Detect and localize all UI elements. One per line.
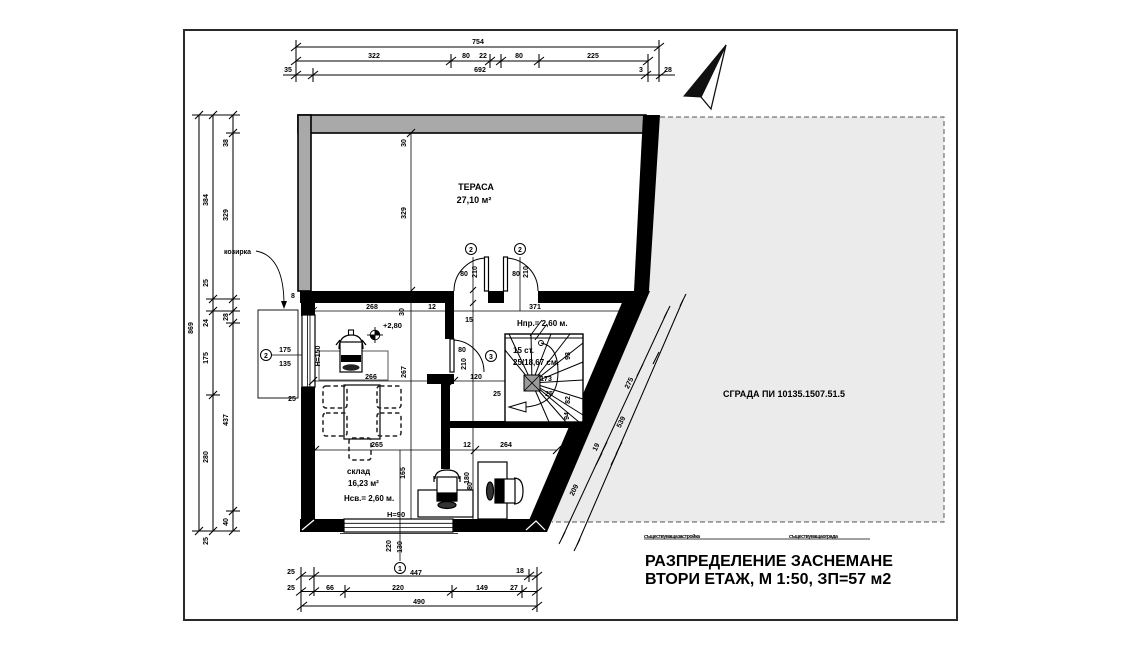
svg-text:210: 210 <box>523 266 530 278</box>
svg-text:30: 30 <box>401 139 408 147</box>
svg-text:2: 2 <box>264 353 268 360</box>
svg-text:268: 268 <box>366 304 378 311</box>
svg-text:869: 869 <box>188 322 195 334</box>
svg-text:437: 437 <box>223 414 230 426</box>
svg-text:210: 210 <box>461 358 468 370</box>
svg-text:съществуващазастройка: съществуващазастройка <box>644 533 700 540</box>
svg-text:40: 40 <box>223 518 230 526</box>
svg-text:съществуващаограда: съществуващаограда <box>789 534 838 540</box>
svg-text:2: 2 <box>518 247 522 254</box>
svg-text:264: 264 <box>500 442 512 449</box>
svg-text:180: 180 <box>464 472 471 484</box>
svg-text:149: 149 <box>476 585 488 592</box>
svg-text:12: 12 <box>463 442 471 449</box>
svg-text:12: 12 <box>428 304 436 311</box>
svg-text:8: 8 <box>291 293 295 300</box>
svg-text:15 ст.: 15 ст. <box>513 346 534 355</box>
svg-text:265: 265 <box>371 442 383 449</box>
svg-text:35: 35 <box>284 67 292 74</box>
svg-text:175: 175 <box>279 347 291 354</box>
svg-text:Нпр.= 2,60 м.: Нпр.= 2,60 м. <box>517 319 568 328</box>
svg-text:28: 28 <box>223 313 230 321</box>
svg-text:25: 25 <box>203 537 210 545</box>
svg-text:3: 3 <box>489 354 493 361</box>
svg-text:РАЗПРЕДЕЛЕНИЕ ЗАСНЕМАНЕ: РАЗПРЕДЕЛЕНИЕ ЗАСНЕМАНЕ <box>645 553 893 570</box>
svg-text:490: 490 <box>413 599 425 606</box>
svg-text:220: 220 <box>386 540 393 552</box>
svg-text:80: 80 <box>458 347 466 354</box>
svg-text:3: 3 <box>639 67 643 74</box>
svg-text:80: 80 <box>515 53 523 60</box>
svg-text:329: 329 <box>223 209 230 221</box>
svg-text:80: 80 <box>462 53 470 60</box>
svg-text:175: 175 <box>203 352 210 364</box>
svg-text:66: 66 <box>326 585 334 592</box>
svg-text:25: 25 <box>287 569 295 576</box>
svg-text:22: 22 <box>479 53 487 60</box>
svg-text:28: 28 <box>664 67 672 74</box>
svg-text:18: 18 <box>516 568 524 575</box>
svg-text:80: 80 <box>460 271 468 278</box>
svg-text:25/18,67 см.: 25/18,67 см. <box>513 358 559 367</box>
svg-text:447: 447 <box>410 570 422 577</box>
svg-text:1: 1 <box>398 566 402 573</box>
svg-text:ВТОРИ ЕТАЖ, М 1:50, ЗП=57 м2: ВТОРИ ЕТАЖ, М 1:50, ЗП=57 м2 <box>645 571 891 588</box>
svg-text:козирка: козирка <box>224 249 251 256</box>
svg-text:82: 82 <box>565 396 572 404</box>
svg-text:266: 266 <box>365 374 377 381</box>
svg-text:+2,80: +2,80 <box>383 321 402 330</box>
svg-text:25: 25 <box>545 391 553 398</box>
svg-text:384: 384 <box>203 194 210 206</box>
svg-text:165: 165 <box>400 467 407 479</box>
svg-text:754: 754 <box>472 39 484 46</box>
svg-text:склад: склад <box>347 467 370 476</box>
svg-text:Н=90: Н=90 <box>387 510 405 519</box>
svg-text:27: 27 <box>510 585 518 592</box>
svg-text:СГРАДА ПИ 10135.1507.51.5: СГРАДА ПИ 10135.1507.51.5 <box>723 389 845 399</box>
svg-text:ТЕРАСА: ТЕРАСА <box>458 182 494 192</box>
svg-text:38: 38 <box>223 139 230 147</box>
svg-text:267: 267 <box>401 366 408 378</box>
svg-text:25: 25 <box>203 279 210 287</box>
svg-text:120: 120 <box>470 374 482 381</box>
svg-text:Нсв.= 2,60 м.: Нсв.= 2,60 м. <box>344 494 394 503</box>
svg-text:25: 25 <box>288 396 296 403</box>
svg-text:94: 94 <box>564 412 571 420</box>
svg-text:24: 24 <box>203 319 210 327</box>
svg-text:371: 371 <box>529 304 541 311</box>
svg-text:30: 30 <box>399 308 406 316</box>
svg-text:692: 692 <box>474 67 486 74</box>
svg-text:25: 25 <box>493 391 501 398</box>
svg-text:220: 220 <box>392 585 404 592</box>
svg-text:93: 93 <box>565 352 572 360</box>
svg-text:15: 15 <box>465 317 473 324</box>
svg-text:25: 25 <box>287 585 295 592</box>
svg-text:135: 135 <box>279 361 291 368</box>
svg-text:130: 130 <box>397 541 404 553</box>
svg-text:12: 12 <box>427 374 435 381</box>
svg-text:322: 322 <box>368 53 380 60</box>
svg-text:Н=150: Н=150 <box>315 345 322 366</box>
svg-text:27,10 м²: 27,10 м² <box>457 195 492 205</box>
svg-text:280: 280 <box>203 451 210 463</box>
svg-text:2: 2 <box>469 247 473 254</box>
svg-text:80: 80 <box>512 271 520 278</box>
svg-text:329: 329 <box>401 207 408 219</box>
svg-text:16,23 м²: 16,23 м² <box>348 479 379 488</box>
svg-text:225: 225 <box>587 53 599 60</box>
svg-text:173: 173 <box>540 376 552 383</box>
